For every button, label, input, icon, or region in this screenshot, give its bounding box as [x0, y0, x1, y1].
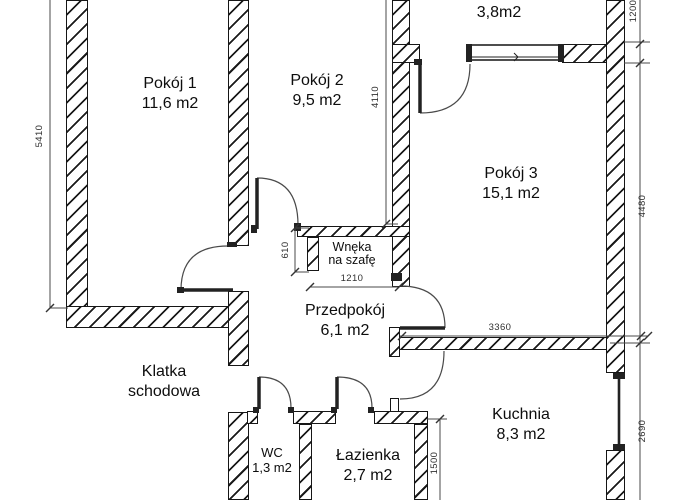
room-name: Pokój 1 [120, 74, 220, 94]
room-name: Przedpokój [285, 301, 405, 321]
door-arc-kuchnia [400, 351, 444, 399]
room-name: WC [222, 445, 322, 460]
room-label-lazienka: Łazienka 2,7 m2 [318, 446, 418, 486]
jamb-pokoj2-left [251, 225, 257, 233]
room-area: 15,1 m2 [461, 184, 561, 204]
dim-text-4110: 4110 [371, 75, 381, 119]
jamb-lazienka-right [368, 407, 374, 413]
jamb-wc-right [288, 407, 294, 413]
door-arc-wc [259, 377, 291, 408]
jamb-balkon-left [414, 59, 422, 65]
room-name: Klatka [114, 362, 214, 382]
door-arc-pokoj2 [257, 178, 298, 225]
room-label-przedpokoj: Przedpokój 6,1 m2 [285, 301, 405, 341]
room-name: Łazienka [318, 446, 418, 466]
window-kuchnia [613, 373, 625, 450]
room-name: Pokój 3 [461, 164, 561, 184]
jamb-lazienka-left [331, 407, 337, 413]
room-area: 6,1 m2 [285, 321, 405, 341]
door-arc-lazienka [337, 377, 372, 408]
dim-text-1200: 1200 [629, 0, 639, 33]
jamb-pokoj3-top [391, 273, 402, 281]
floor-plan-canvas: Pokój 1 11,6 m2 Pokój 2 9,5 m2 Pokój 3 1… [0, 0, 700, 500]
dim-text-3360: 3360 [470, 323, 530, 333]
dim-text-610: 610 [281, 228, 291, 272]
jamb-pokoj1-leaf-tip [177, 287, 184, 293]
room-label-wneka: Wnęka na szafę [302, 241, 402, 267]
dim-text-2690: 2690 [638, 409, 648, 453]
dim-text-1500: 1500 [430, 441, 440, 485]
dim-text-5410: 5410 [35, 114, 45, 158]
dim-text-1210: 1210 [322, 274, 382, 284]
room-label-balkon: Balkon 3,8m2 [449, 0, 549, 22]
room-name: Pokój 2 [267, 71, 367, 91]
room-label-pokoj1: Pokój 1 11,6 m2 [120, 74, 220, 114]
door-leaves [181, 64, 445, 409]
room-name-line2: na szafę [302, 254, 402, 267]
room-label-klatka-schodowa: Klatka schodowa [114, 362, 214, 402]
room-label-kuchnia: Kuchnia 8,3 m2 [471, 405, 571, 445]
room-area: 2,7 m2 [318, 466, 418, 486]
room-label-pokoj2: Pokój 2 9,5 m2 [267, 71, 367, 111]
door-arc-pokoj3 [400, 286, 445, 328]
dim-text-4480: 4480 [638, 184, 648, 228]
window-balkon [466, 44, 564, 62]
room-area: 3,8m2 [449, 3, 549, 22]
room-area: 11,6 m2 [120, 94, 220, 114]
room-label-wc: WC 1,3 m2 [222, 445, 322, 475]
door-arc-pokoj1 [181, 246, 228, 290]
room-area: 9,5 m2 [267, 91, 367, 111]
room-area: 1,3 m2 [222, 460, 322, 475]
jamb-wc-left [253, 407, 259, 413]
jamb-pokoj1-top [227, 242, 237, 247]
room-label-pokoj3: Pokój 3 15,1 m2 [461, 164, 561, 204]
room-area: 8,3 m2 [471, 425, 571, 445]
room-name-line2: schodowa [114, 382, 214, 402]
door-arc-balkon [420, 64, 470, 113]
room-name: Kuchnia [471, 405, 571, 425]
door-arcs [181, 64, 470, 408]
